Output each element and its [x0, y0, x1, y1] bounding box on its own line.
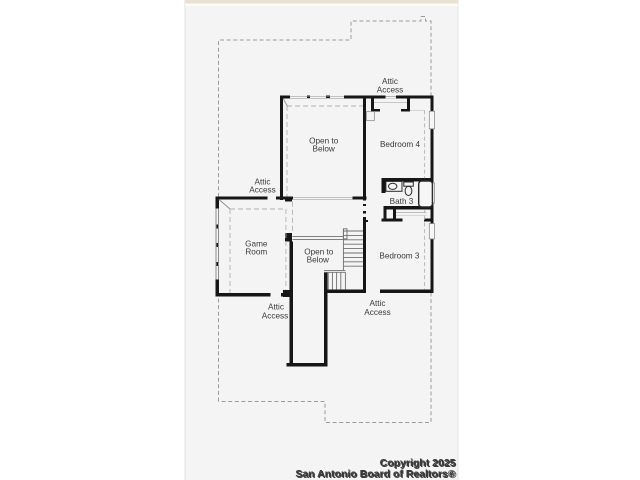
- svg-text:Bedroom 3: Bedroom 3: [379, 252, 419, 261]
- svg-text:Attic: Attic: [268, 302, 284, 311]
- svg-text:Access: Access: [364, 308, 390, 317]
- svg-text:Room: Room: [245, 248, 267, 257]
- svg-text:Access: Access: [262, 312, 288, 321]
- svg-text:Bath 3: Bath 3: [390, 197, 414, 206]
- svg-text:Access: Access: [377, 86, 403, 95]
- svg-text:Attic: Attic: [370, 299, 386, 308]
- svg-text:San Antonio Board of Realtors®: San Antonio Board of Realtors®: [295, 468, 455, 480]
- svg-text:Access: Access: [249, 186, 275, 195]
- svg-text:Below: Below: [307, 255, 329, 264]
- svg-text:Below: Below: [313, 145, 335, 154]
- svg-text:Bedroom 4: Bedroom 4: [380, 140, 420, 149]
